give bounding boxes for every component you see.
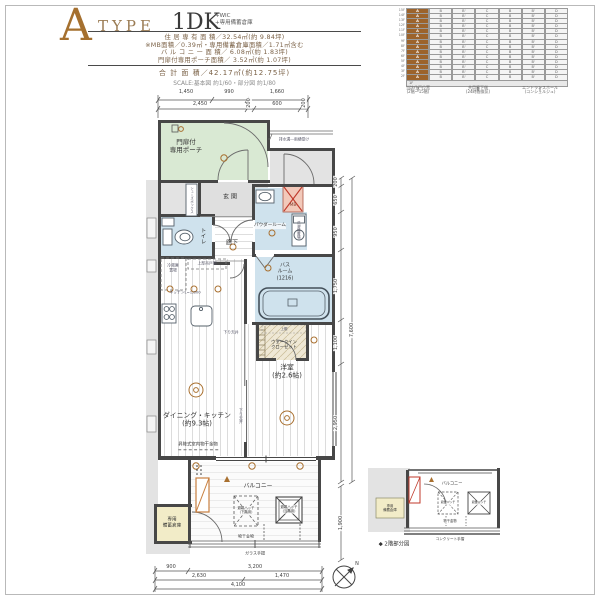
header-rule-bottom (88, 65, 361, 66)
label-drying: 物干金物 (238, 534, 254, 539)
label-drain-note: 排水溝―雨樋受け (279, 138, 309, 143)
room-label-toilet: トイレ (199, 228, 206, 245)
room-label-wic: ウォークイン クローゼット (271, 341, 297, 352)
dimension-label: 900 (165, 564, 177, 570)
label-hatch-this: 避難ハッチ (当階用) (281, 505, 298, 514)
type-letter: A (60, 0, 92, 51)
label-hanging-cupboard: 上部吊戸棚 (198, 262, 217, 267)
label-down-ceiling: 下り天井 (223, 331, 238, 336)
scale-line: SCALE:基本図 約1/60・部分図 約1/80 (88, 78, 361, 87)
dimension-label: 950 (333, 226, 339, 238)
room-label-storage: 専用 備蓄倉庫 (163, 517, 181, 528)
mini-label-hatch2: 避難ハッチ (472, 501, 486, 505)
dimension-label: 200 (333, 176, 339, 188)
mini-label-hatch1: 避難ハッチ (441, 501, 455, 505)
room-label-genkan: 玄関 (223, 193, 239, 201)
room-label-porch: 門扉付 専用ポーチ (170, 138, 203, 154)
header-rule-top (88, 31, 361, 32)
area-lines: 住 居 専 有 面 積／32.54㎡(約 9.84坪)※MB面積／0.39㎡・専… (88, 34, 361, 64)
mini-label-drying: 物干金物 (443, 519, 456, 523)
floorplan-page: { "colors":{"accent_brown":"#a5702f","po… (0, 0, 600, 600)
label-kitchen: キッチンL=1,800 (169, 291, 200, 296)
building-stack-diagram: 15FABB'CBB'D14FABB'CBB'D13FABB'CBB'D12FA… (392, 8, 568, 102)
dimension-label: 3,200 (247, 564, 263, 570)
mini-label-balcony: バルコニー (442, 480, 463, 485)
room-label-washer: 洗濯機置場 (297, 221, 301, 239)
compass-north-label: N (355, 561, 359, 567)
dimension-label: 2,630 (191, 573, 207, 579)
area-line: 門扉付専用ポーチ面積／ 3.52㎡(約 1.07坪) (88, 57, 361, 65)
compass-icon (333, 566, 355, 588)
room-label-mb: MB (289, 203, 296, 209)
stack-note: 共用廊下側 (24時間換気) (447, 86, 509, 95)
dimension-label: 1,660 (269, 89, 285, 95)
room-label-fridge: 冷蔵庫 置場 (167, 263, 178, 272)
dimension-label: 990 (223, 89, 235, 95)
stack-note: エントランスホール (コンシェルジュ) (509, 86, 571, 95)
mini-plan-title: ◆ 2階部分図 (379, 542, 410, 549)
dim-balcony-vertical: 1,900 (338, 515, 344, 531)
room-label-western: 洋室 (約2.6帖) (272, 364, 302, 381)
label-glass-rail: ガラス手摺 (245, 551, 265, 556)
area-line: バ ル コ ニ ー 面 積／ 6.08㎡(約 1.83坪) (88, 49, 361, 57)
type-word: TYPE (98, 17, 155, 35)
label-dk-note: 昇降式室内物干金物 (178, 442, 218, 450)
dim-right-total: 7,600 (349, 322, 355, 338)
label-down-ceiling-2: 下り天井 (239, 408, 244, 423)
dimension-label: 1,100 (333, 335, 339, 351)
room-label-bath: バス ルーム (1216) (277, 263, 294, 282)
room-label-powder: パウダールーム (254, 223, 286, 229)
label-wic-shelf: 上棚 (281, 327, 288, 331)
stack-row: 2FABB'CBB'D (392, 74, 568, 79)
stack-notes: 当該住戸位置 (2階〜15階)共用廊下側 (24時間換気)エントランスホール (… (392, 86, 568, 102)
mini-label-rail: コンクリート手摺 (436, 537, 465, 541)
dimension-label: 4,100 (230, 582, 246, 588)
label-hatch-lower: 避難ハッチ (下階用) (238, 506, 255, 515)
dimension-label: 200 (301, 97, 307, 109)
room-label-dk: ダイニング・キッチン (約9.3帖) (163, 412, 231, 429)
dimension-label: 1,750 (333, 278, 339, 294)
plan-suffix: +WIC+専用備蓄倉庫 (215, 13, 253, 27)
dimension-label: 2,950 (333, 415, 339, 431)
mini-label-storage: 専用 備蓄倉庫 (383, 504, 397, 513)
dimension-label: 2,450 (192, 101, 208, 107)
dimension-label: 1,470 (274, 573, 290, 579)
dimension-label: 200 (246, 97, 252, 109)
stack-rows: 15FABB'CBB'D14FABB'CBB'D13FABB'CBB'D12FA… (392, 8, 568, 79)
room-label-hall: 廊下 (226, 239, 238, 247)
room-label-shoebox: シューズボックス (189, 187, 193, 213)
stack-note: 当該住戸位置 (2階〜15階) (387, 86, 449, 95)
area-line: 住 居 専 有 面 積／32.54㎡(約 9.84坪) (88, 34, 361, 42)
total-area-line: 合 計 面 積／42.17㎡(約12.75坪) (88, 68, 361, 78)
dimension-label: 600 (271, 101, 283, 107)
dimension-label: 1,450 (178, 89, 194, 95)
room-label-balcony: バルコニー (244, 483, 273, 490)
dimension-label: 650 (333, 194, 339, 206)
